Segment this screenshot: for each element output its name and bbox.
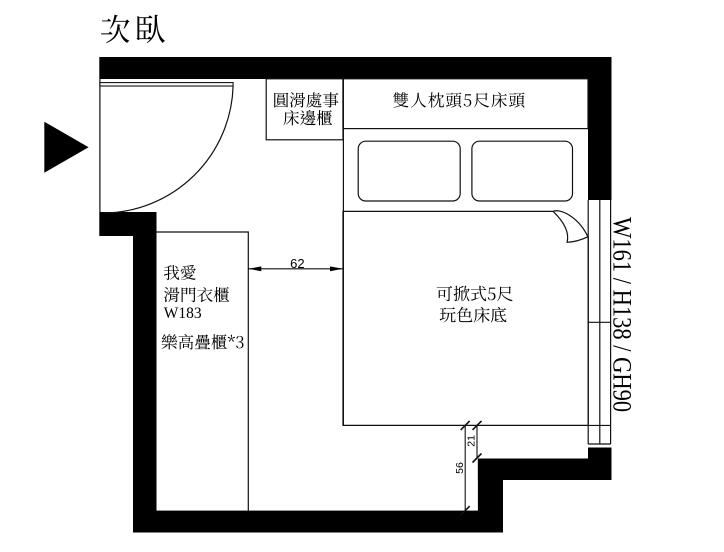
svg-text:W183: W183 [164, 305, 202, 322]
svg-text:62: 62 [290, 256, 304, 271]
svg-text:W161 / H138 / GH90: W161 / H138 / GH90 [608, 217, 638, 412]
svg-text:21: 21 [466, 435, 478, 447]
svg-text:56: 56 [454, 462, 466, 474]
